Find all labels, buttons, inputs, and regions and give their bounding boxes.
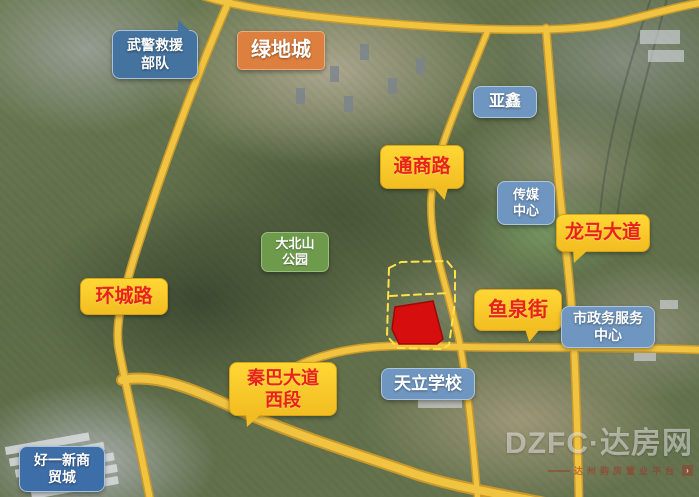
parcel-red-plot [392, 301, 443, 344]
label-qinba-avenue-west: 秦巴大道 西段 [229, 362, 337, 416]
label-text: 传媒 [513, 187, 539, 203]
label-text: 天立学校 [394, 373, 462, 394]
parcel-dashed-divider [390, 293, 449, 296]
label-tongshang-road: 通商路 [380, 145, 464, 189]
label-haoyixin-trade-mall: 好一新商 贸城 [19, 446, 105, 492]
label-text: 龙马大道 [565, 221, 641, 245]
label-text: 秦巴大道 [247, 367, 319, 390]
arrow-badge-icon: › [682, 465, 693, 476]
label-text: 大北山 [275, 236, 314, 252]
label-text: 环城路 [95, 285, 152, 309]
watermark-slogan-row: 达州购房置业平台 › [505, 464, 693, 477]
label-text: 中心 [594, 327, 622, 345]
label-yaxin: 亚鑫 [473, 86, 537, 118]
label-text: 中心 [513, 203, 539, 219]
label-text: 绿地城 [251, 38, 311, 63]
label-text: 好一新商 [34, 452, 90, 470]
label-text: 鱼泉街 [488, 298, 548, 323]
label-longma-avenue: 龙马大道 [556, 214, 650, 252]
label-text: 亚鑫 [489, 92, 521, 112]
site-watermark: DZFC·达房网 达州购房置业平台 › [505, 418, 693, 477]
label-text: 武警救援 [127, 37, 183, 55]
label-text: 公园 [282, 252, 308, 268]
label-text: 市政务服务 [573, 310, 643, 328]
watermark-slogan: 达州购房置业平台 [574, 464, 678, 477]
label-text: 西段 [265, 389, 301, 412]
slogan-dash [548, 470, 570, 472]
satellite-location-map: 武警救援 部队 绿地城 亚鑫 通商路 传媒 中心 龙马大道 大北山 公园 环城路… [0, 0, 699, 497]
label-dabeishan-park: 大北山 公园 [261, 232, 329, 272]
label-huancheng-road: 环城路 [80, 278, 168, 315]
label-text: 通商路 [393, 155, 450, 179]
label-greenland-city: 绿地城 [237, 31, 325, 70]
label-text: 贸城 [48, 469, 76, 487]
label-civic-service-center: 市政务服务 中心 [561, 306, 655, 348]
watermark-brand: DZFC·达房网 [505, 418, 693, 462]
label-yuquan-street: 鱼泉街 [474, 289, 562, 331]
label-tianli-school: 天立学校 [381, 368, 475, 400]
label-text: 部队 [141, 55, 169, 73]
label-media-center: 传媒 中心 [497, 181, 555, 225]
label-armed-police-rescue-troops: 武警救援 部队 [112, 30, 198, 79]
